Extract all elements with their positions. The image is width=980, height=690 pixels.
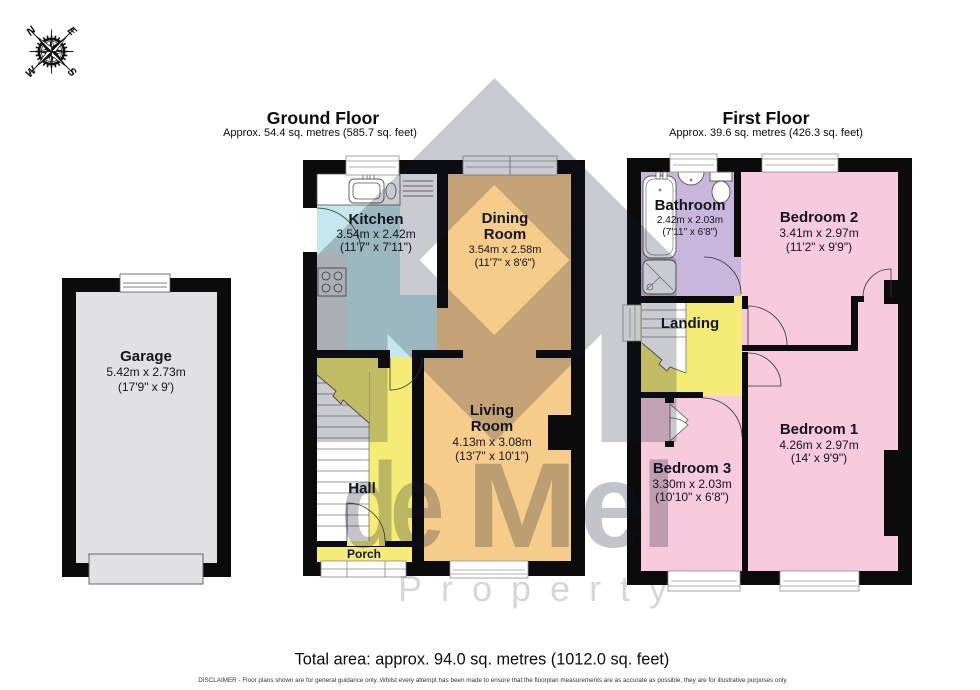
svg-text:Total area: approx. 94.0 sq. m: Total area: approx. 94.0 sq. metres (101… <box>295 651 670 669</box>
svg-text:DISCLAIMER - Floor plans sho: DISCLAIMER - Floor plans shown are for g… <box>198 677 788 684</box>
svg-text:Bathroom: Bathroom <box>655 197 726 214</box>
svg-text:e: e <box>390 438 445 573</box>
svg-text:3.54m x 2.58m: 3.54m x 2.58m <box>469 244 542 256</box>
svg-text:(17'9" x 9'): (17'9" x 9') <box>118 380 174 394</box>
svg-text:l: l <box>640 439 678 574</box>
svg-text:(14' x 9'9"): (14' x 9'9") <box>791 451 847 465</box>
svg-text:First Floor: First Floor <box>723 108 810 128</box>
svg-text:5.42m x 2.73m: 5.42m x 2.73m <box>106 365 185 379</box>
svg-text:Approx. 39.6 sq. metres (426.3: Approx. 39.6 sq. metres (426.3 sq. feet) <box>669 127 863 139</box>
svg-text:Garage: Garage <box>120 348 172 365</box>
svg-text:e: e <box>580 438 645 573</box>
svg-text:Room: Room <box>484 226 527 243</box>
svg-text:Dining: Dining <box>482 210 529 227</box>
svg-text:3.41m x 2.97m: 3.41m x 2.97m <box>779 226 858 240</box>
svg-text:(7'11" x 6'8"): (7'11" x 6'8") <box>662 227 717 238</box>
svg-text:Property: Property <box>398 568 686 609</box>
svg-text:Ground Floor: Ground Floor <box>267 108 380 128</box>
svg-text:M: M <box>466 439 577 574</box>
svg-text:(11'2" x 9'9"): (11'2" x 9'9") <box>786 240 852 254</box>
svg-text:Approx. 54.4 sq. metres (585.7: Approx. 54.4 sq. metres (585.7 sq. feet) <box>223 127 417 139</box>
svg-text:Bedroom 1: Bedroom 1 <box>780 421 858 438</box>
svg-text:4.26m x 2.97m: 4.26m x 2.97m <box>779 438 858 452</box>
svg-text:Bedroom 2: Bedroom 2 <box>780 209 858 226</box>
svg-text:2.42m x 2.03m: 2.42m x 2.03m <box>657 215 723 226</box>
svg-text:(11'7" x 8'6"): (11'7" x 8'6") <box>475 257 536 269</box>
